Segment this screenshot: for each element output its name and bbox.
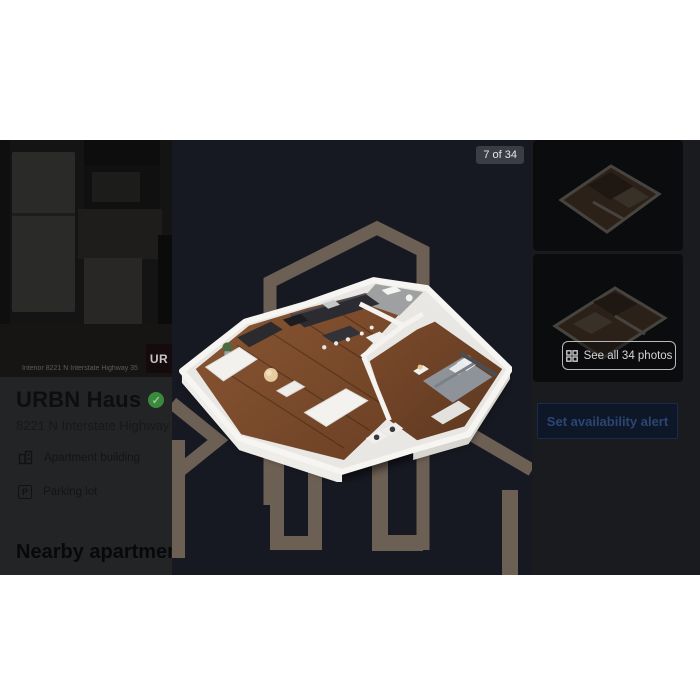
gallery-sidebar: See all 34 photos Set availability alert [532,140,700,575]
photo-microwave-door [92,172,140,202]
urbn-logo-badge: UR [146,344,172,373]
nearby-apartments-heading: Nearby apartments for [16,541,172,564]
listing-address: 8221 N Interstate Highway 35 [16,418,172,433]
page: Interior 8221 N Interstate Highway 35 UR… [0,0,700,700]
listing-panel: Interior 8221 N Interstate Highway 35 UR… [0,140,172,575]
photo-sink-vanity [84,258,142,324]
photo-counter-badge: 7 of 34 [476,146,524,164]
photo-viewer: 7 of 34 [172,140,532,575]
apartment-building-icon [18,450,33,465]
amenity-label: Apartment building [44,452,140,464]
photo-backsplash [78,209,162,259]
see-all-photos-button[interactable]: See all 34 photos [562,341,676,370]
photo-fridge [12,152,75,312]
listing-title: URBN Haus [16,387,141,413]
floor-plan-image[interactable] [176,264,512,482]
set-availability-alert-button[interactable]: Set availability alert [537,403,678,439]
photo-upper-cabinet [84,140,160,166]
grid-icon [566,350,578,362]
thumbnail-1-floorplan [533,140,683,251]
listing-title-row: URBN Haus ✓ [16,387,164,413]
overlay-content-band: Interior 8221 N Interstate Highway 35 UR… [0,140,700,575]
photo-thumbnail-1[interactable] [533,140,683,251]
amenity-row-building: Apartment building [18,450,140,465]
parking-icon: P [18,485,32,499]
photo-fridge-divider [12,213,75,216]
verified-check-icon: ✓ [148,392,164,408]
amenity-label: Parking lot [43,486,97,498]
set-availability-alert-label: Set availability alert [547,414,668,429]
listing-kitchen-photo [0,140,172,377]
amenity-row-parking: P Parking lot [18,485,97,499]
see-all-photos-label: See all 34 photos [584,350,673,362]
